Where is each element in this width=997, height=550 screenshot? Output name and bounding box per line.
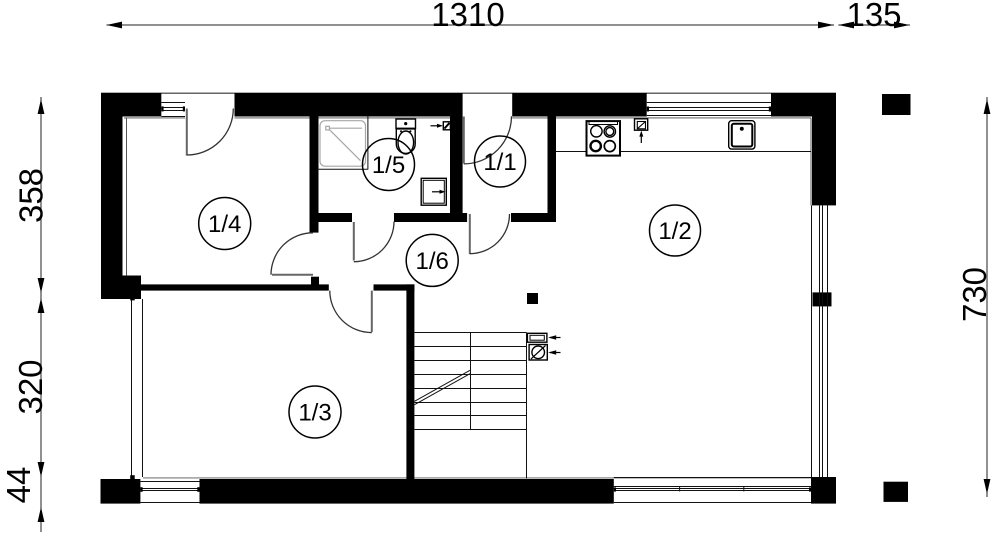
svg-text:44: 44 (0, 467, 37, 504)
svg-text:1/5: 1/5 (372, 152, 405, 179)
svg-text:1/4: 1/4 (208, 211, 241, 238)
svg-text:1/1: 1/1 (483, 149, 516, 176)
svg-text:1/6: 1/6 (416, 248, 449, 275)
svg-text:1310: 1310 (431, 0, 504, 33)
svg-text:358: 358 (13, 168, 50, 223)
svg-text:320: 320 (12, 359, 49, 414)
svg-text:730: 730 (956, 267, 993, 322)
svg-text:135: 135 (846, 0, 901, 33)
svg-text:1/2: 1/2 (658, 218, 691, 245)
svg-text:1/3: 1/3 (298, 400, 331, 427)
